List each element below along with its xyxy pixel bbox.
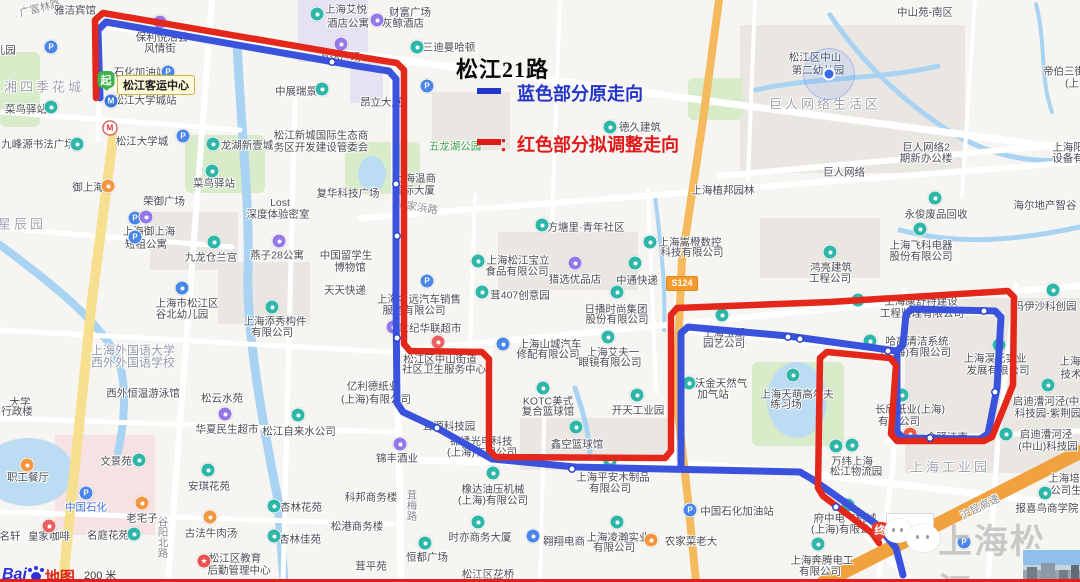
start-pin-tail-icon bbox=[102, 87, 110, 95]
bus-stop-dot[interactable] bbox=[394, 233, 400, 239]
selected-poi-label[interactable]: 松江客运中心 bbox=[117, 75, 195, 95]
bus-stop-dot[interactable] bbox=[797, 336, 803, 342]
bus-stop-dot[interactable] bbox=[981, 308, 987, 314]
bus-stop-dot[interactable] bbox=[927, 435, 933, 441]
bus-stop-dot[interactable] bbox=[992, 389, 998, 395]
route-original-blue bbox=[98, 22, 903, 575]
bus-stop-dot[interactable] bbox=[434, 425, 440, 431]
map-canvas[interactable]: 广富林路雅洁宾馆上海艾悦酒店公寓幼儿园三湘四季花城菜鸟驿站松江大学城站松江大学城… bbox=[0, 0, 1080, 582]
start-pin-glyph: 起 bbox=[98, 71, 115, 88]
bus-stop-dot[interactable] bbox=[329, 59, 335, 65]
legend-red: ：红色部分拟调整走向 bbox=[499, 131, 679, 157]
bus-stop-dot[interactable] bbox=[393, 181, 399, 187]
location-dot-icon bbox=[823, 68, 836, 81]
legend-red-swatch bbox=[477, 139, 501, 145]
legend-red-colon: ： bbox=[499, 135, 517, 155]
road-number-badge: S124 bbox=[666, 276, 698, 291]
legend-blue: 蓝色部分原走向 bbox=[517, 80, 643, 106]
bus-stop-dot[interactable] bbox=[394, 335, 400, 341]
legend-blue-text: 蓝色部分原走向 bbox=[517, 84, 643, 104]
bus-stop-dot[interactable] bbox=[569, 466, 575, 472]
wechat-bubble-icon bbox=[906, 524, 940, 552]
route-start-pin[interactable]: 起 bbox=[98, 71, 115, 95]
bus-stop-dot[interactable] bbox=[785, 334, 791, 340]
bus-stop-dot[interactable] bbox=[833, 504, 839, 510]
street-photo-thumbnail[interactable] bbox=[1022, 549, 1080, 582]
legend-red-text: 红色部分拟调整走向 bbox=[517, 135, 679, 155]
end-pin-tail-icon bbox=[876, 537, 884, 545]
bus-stop-dot[interactable] bbox=[885, 348, 891, 354]
legend-blue-swatch bbox=[477, 88, 501, 94]
